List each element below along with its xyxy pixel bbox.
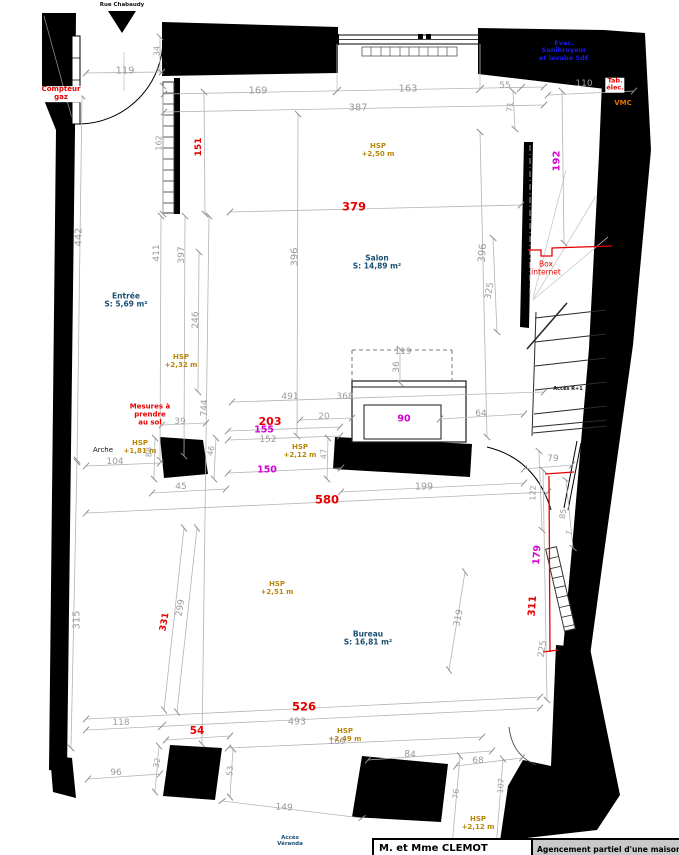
floor-plan: Rue ChabaudyCompteur gaz1193416916355110… bbox=[0, 0, 679, 855]
floor-plan-drawing bbox=[0, 0, 679, 855]
dimension-tick bbox=[462, 568, 467, 575]
wall-mid bbox=[333, 437, 472, 477]
title-block-client: M. et Mme CLEMOT bbox=[374, 840, 533, 855]
wall-right bbox=[559, 32, 651, 700]
pillar-bottom-small bbox=[163, 745, 222, 800]
wall-top-left bbox=[162, 22, 338, 76]
radiator-icon bbox=[163, 82, 174, 213]
wall-left bbox=[49, 130, 75, 772]
entrance-door-icon bbox=[72, 36, 163, 124]
wall-bottom-right bbox=[500, 645, 620, 841]
dimension-ticks bbox=[158, 84, 525, 730]
pillar-bottom-large bbox=[352, 756, 448, 822]
street-arrow-icon bbox=[108, 11, 136, 33]
stair-door-icon bbox=[487, 441, 581, 510]
window-icon bbox=[334, 34, 483, 56]
title-block: M. et Mme CLEMOT Agencement partiel d'un… bbox=[372, 838, 679, 855]
fireplace-icon bbox=[352, 381, 466, 442]
dimension-tick bbox=[446, 666, 451, 673]
wall-bottom-left bbox=[50, 755, 76, 798]
fireplace-dashed-outline bbox=[352, 350, 452, 381]
wall-stair bbox=[520, 142, 533, 328]
title-block-project: Agencement partiel d'une maison d'hab bbox=[533, 840, 679, 855]
wall-radiator-stub bbox=[174, 78, 180, 214]
